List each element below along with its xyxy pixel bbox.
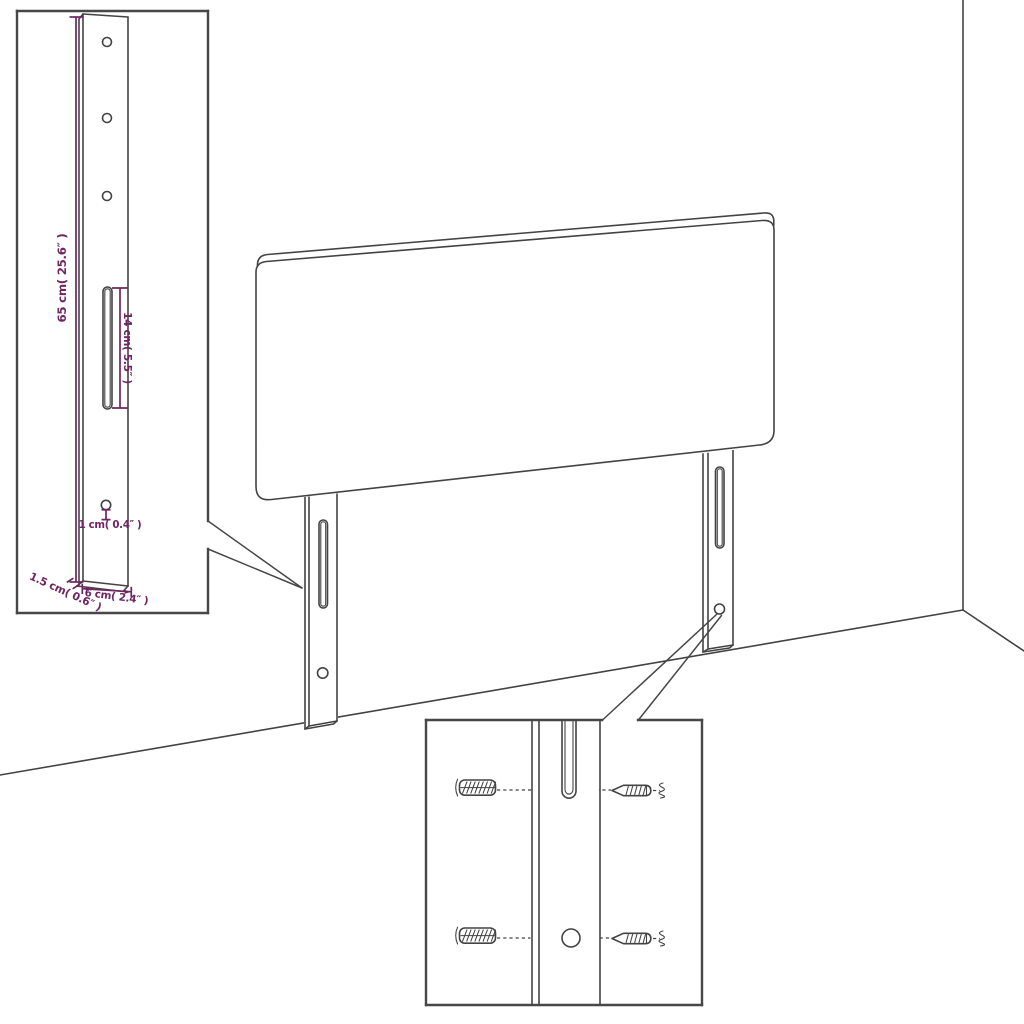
dim-label-leg-height: 65 cm( 25.6″ ) [55, 234, 69, 323]
headboard-left-leg [304, 483, 338, 730]
mount-leg-strip [532, 722, 600, 1004]
dim-label-hole-diameter: 1 cm( 0.4″ ) [79, 520, 142, 531]
assembly-diagram: 65 cm( 25.6″ ) 14 cm( 5.5″ ) 1 cm( 0.4″ … [0, 0, 1024, 1024]
mount-leg-face [533, 722, 599, 1004]
diagram-page: 65 cm( 25.6″ ) 14 cm( 5.5″ ) 1 cm( 0.4″ … [0, 0, 1024, 1024]
mount-detail-inset [426, 720, 702, 1005]
dim-label-slot-length: 14 cm( 5.5″ ) [121, 312, 133, 384]
headboard-right-leg [702, 441, 734, 653]
